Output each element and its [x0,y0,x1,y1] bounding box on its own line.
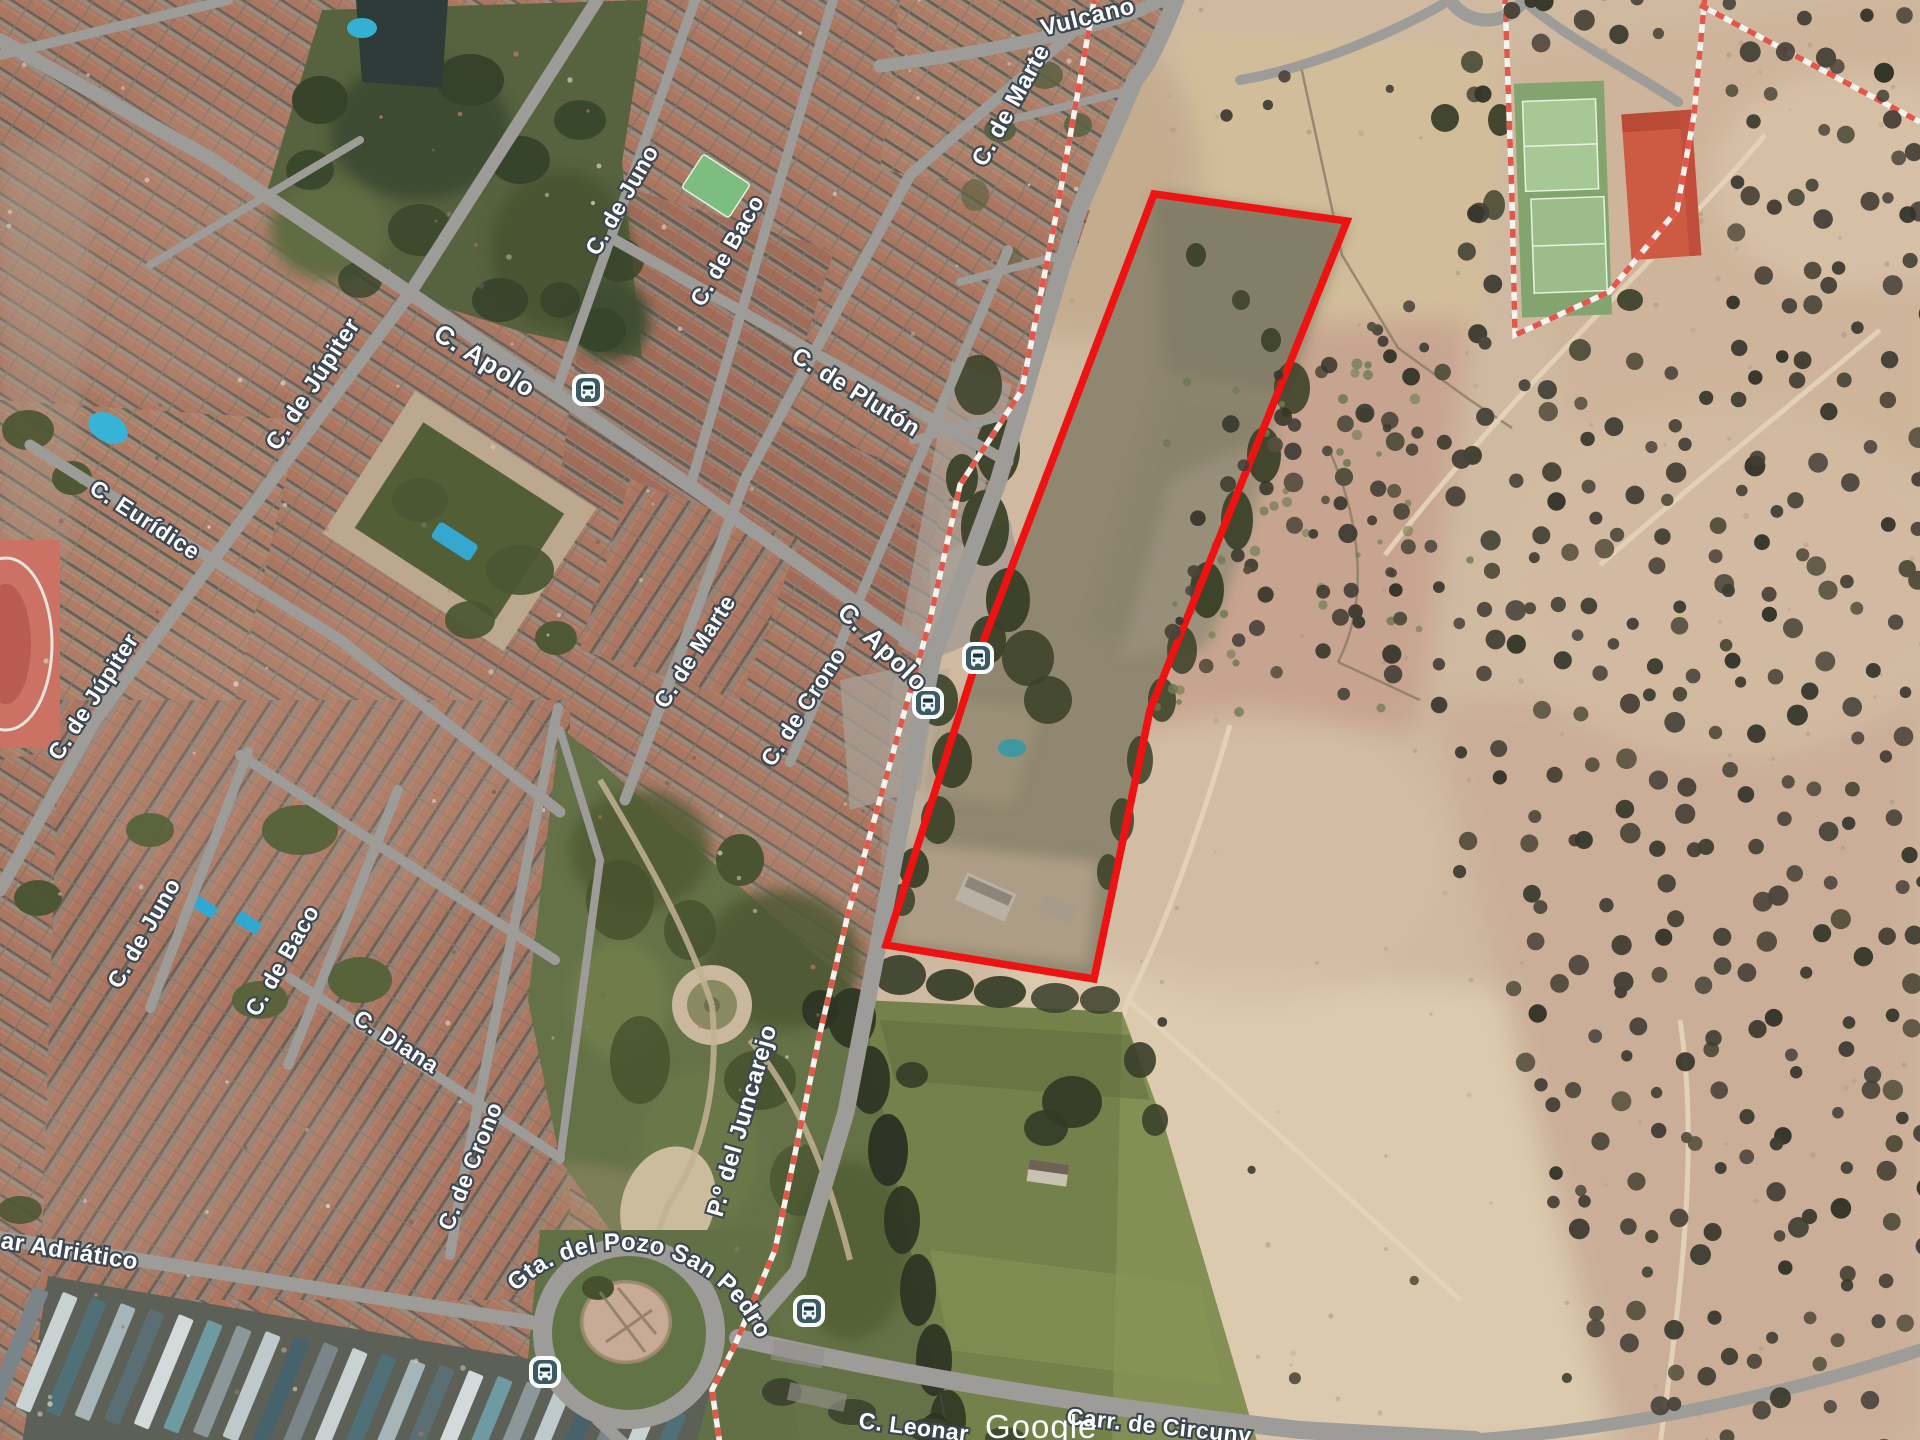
svg-text:Google: Google [985,1408,1097,1440]
